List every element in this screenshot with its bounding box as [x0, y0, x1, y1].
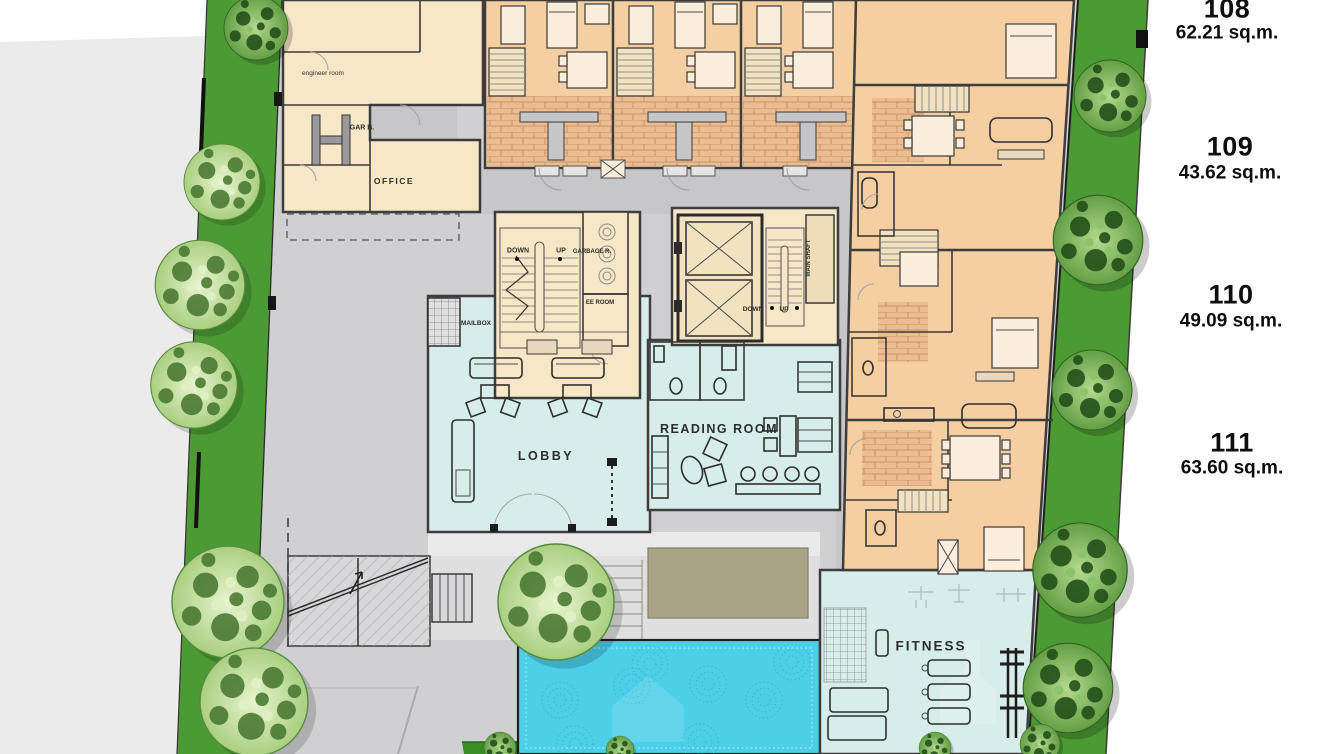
- elevator-core: [672, 208, 838, 345]
- room-label-garbage: GARBAGE R.: [573, 249, 611, 255]
- ground-floorplan-image: engineer room GAR B. OFFICE DOWN UP GARB…: [0, 0, 1342, 754]
- floorplan-drawing: [0, 0, 1342, 754]
- sun-deck: [648, 548, 808, 618]
- stair-label-up: UP: [556, 248, 566, 255]
- right-unit-column: [843, 0, 1074, 574]
- unit-110-number: 110: [1208, 282, 1253, 309]
- unit-109-number: 109: [1207, 134, 1254, 161]
- top-unit-row: [485, 0, 856, 190]
- room-label-lobby: LOBBY: [518, 450, 574, 463]
- room-label-ee-room: EE ROOM: [586, 300, 614, 306]
- room-label-engineer-room: engineer room: [302, 71, 344, 78]
- elev-stair-label-down: DOWN: [743, 307, 764, 314]
- room-label-main-shaft: MAIN SHAFT: [806, 240, 812, 277]
- unit-109-area: 43.62 sq.m.: [1179, 164, 1281, 183]
- room-label-office: OFFICE: [374, 177, 414, 186]
- unit-108-area: 62.21 sq.m.: [1176, 24, 1278, 43]
- room-label-gar-b: GAR B.: [350, 125, 375, 132]
- stair-label-down: DOWN: [507, 248, 529, 255]
- room-label-mailbox: MAILBOX: [461, 321, 491, 328]
- unit-110-area: 49.09 sq.m.: [1180, 312, 1282, 331]
- room-label-reading-room: READING ROOM: [660, 423, 778, 436]
- unit-111-number: 111: [1210, 430, 1254, 457]
- unit-111-area: 63.60 sq.m.: [1181, 459, 1283, 478]
- unit-108-number: 108: [1204, 0, 1251, 23]
- room-label-fitness: FITNESS: [895, 639, 966, 653]
- elev-stair-label-up: UP: [779, 307, 788, 314]
